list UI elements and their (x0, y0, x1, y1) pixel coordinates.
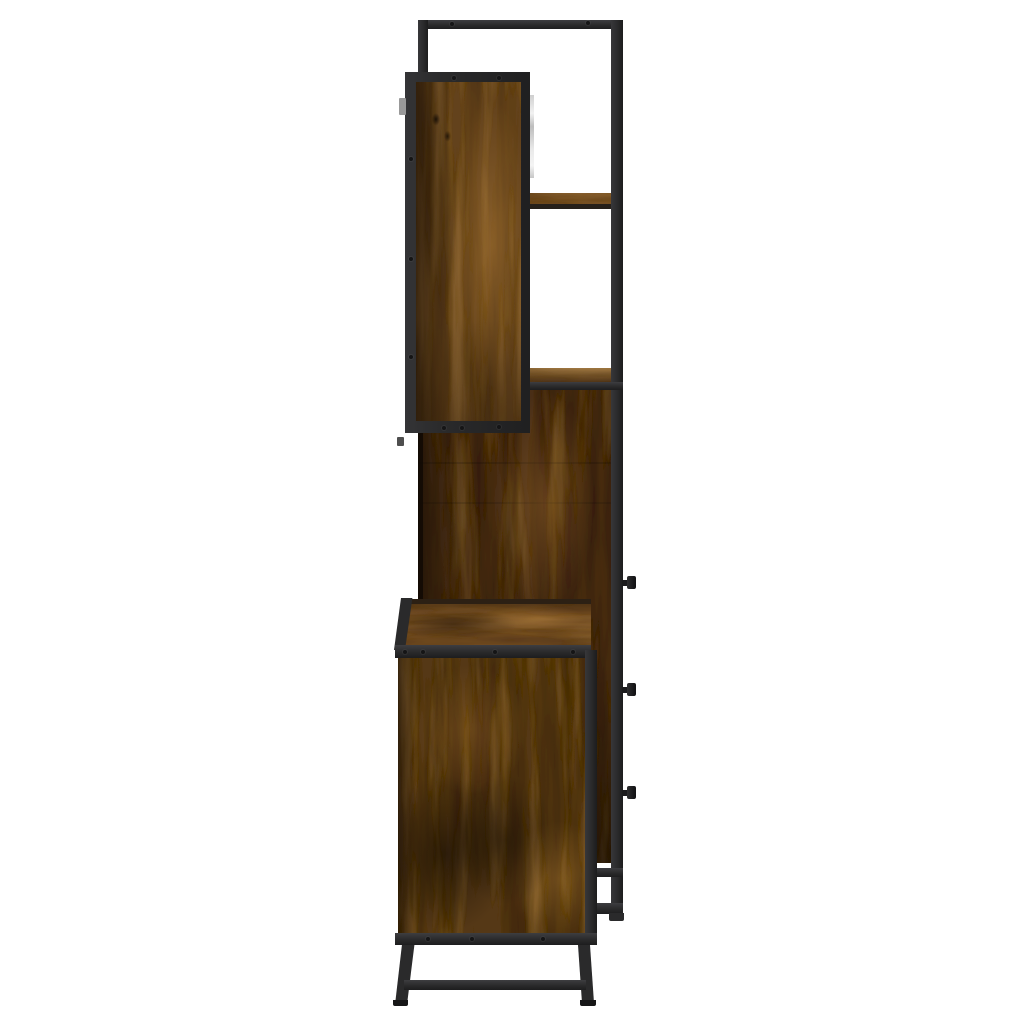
tall-cabinet-front-foot (609, 913, 624, 921)
screw-icon (421, 650, 425, 654)
screw-icon (409, 257, 413, 261)
drawer-knob-bottom (622, 786, 636, 799)
drawer-knob-middle (622, 683, 636, 696)
screw-icon (586, 21, 590, 25)
tall-cabinet-base-stretcher-upper (597, 868, 623, 877)
washbasin-right-leg (576, 945, 596, 1003)
screw-icon (460, 426, 464, 430)
tall-cabinet-front-post (611, 20, 623, 920)
knob-cap (627, 683, 636, 696)
screw-icon (403, 650, 407, 654)
wood-grain-texture (395, 599, 591, 645)
screw-icon (470, 937, 474, 941)
screw-icon (409, 157, 413, 161)
wall-mount-bracket (399, 98, 406, 115)
screw-icon (497, 425, 501, 429)
wall-cabinet-side-panel (416, 82, 521, 421)
corner-fitting (397, 437, 404, 446)
hinge-strip (530, 95, 534, 178)
washbasin-left-foot (393, 1000, 408, 1006)
washbasin-side-panel (398, 658, 597, 934)
wood-grain-texture (528, 368, 611, 382)
washbasin-top-surface (395, 599, 591, 645)
drawer-knob-top (622, 576, 636, 589)
knob-cap (627, 786, 636, 799)
washbasin-leg-stretcher (404, 980, 586, 990)
screw-icon (493, 650, 497, 654)
product-photo-bathroom-set (0, 0, 1024, 1024)
screw-icon (541, 937, 545, 941)
knob-cap (627, 576, 636, 589)
mid-shelf-rail (528, 382, 623, 390)
wood-grain-texture (416, 82, 521, 421)
screw-icon (442, 426, 446, 430)
washbasin-top-back-edge (406, 599, 591, 604)
tall-cabinet-back-post (418, 20, 428, 77)
screw-icon (452, 76, 456, 80)
screw-icon (409, 355, 413, 359)
screw-icon (450, 22, 454, 26)
screw-icon (426, 937, 430, 941)
screw-icon (497, 76, 501, 80)
washbasin-right-foot (580, 1000, 596, 1006)
wood-grain-texture (398, 658, 597, 934)
tall-cabinet-top-bar (418, 20, 623, 29)
tall-cabinet-mid-shelf (528, 368, 611, 382)
washbasin-left-leg (394, 945, 418, 1003)
upper-shelf-under-rail (528, 204, 611, 209)
washbasin-corner-post (585, 650, 597, 945)
wall-cabinet-frame (405, 72, 530, 433)
screw-icon (571, 650, 575, 654)
